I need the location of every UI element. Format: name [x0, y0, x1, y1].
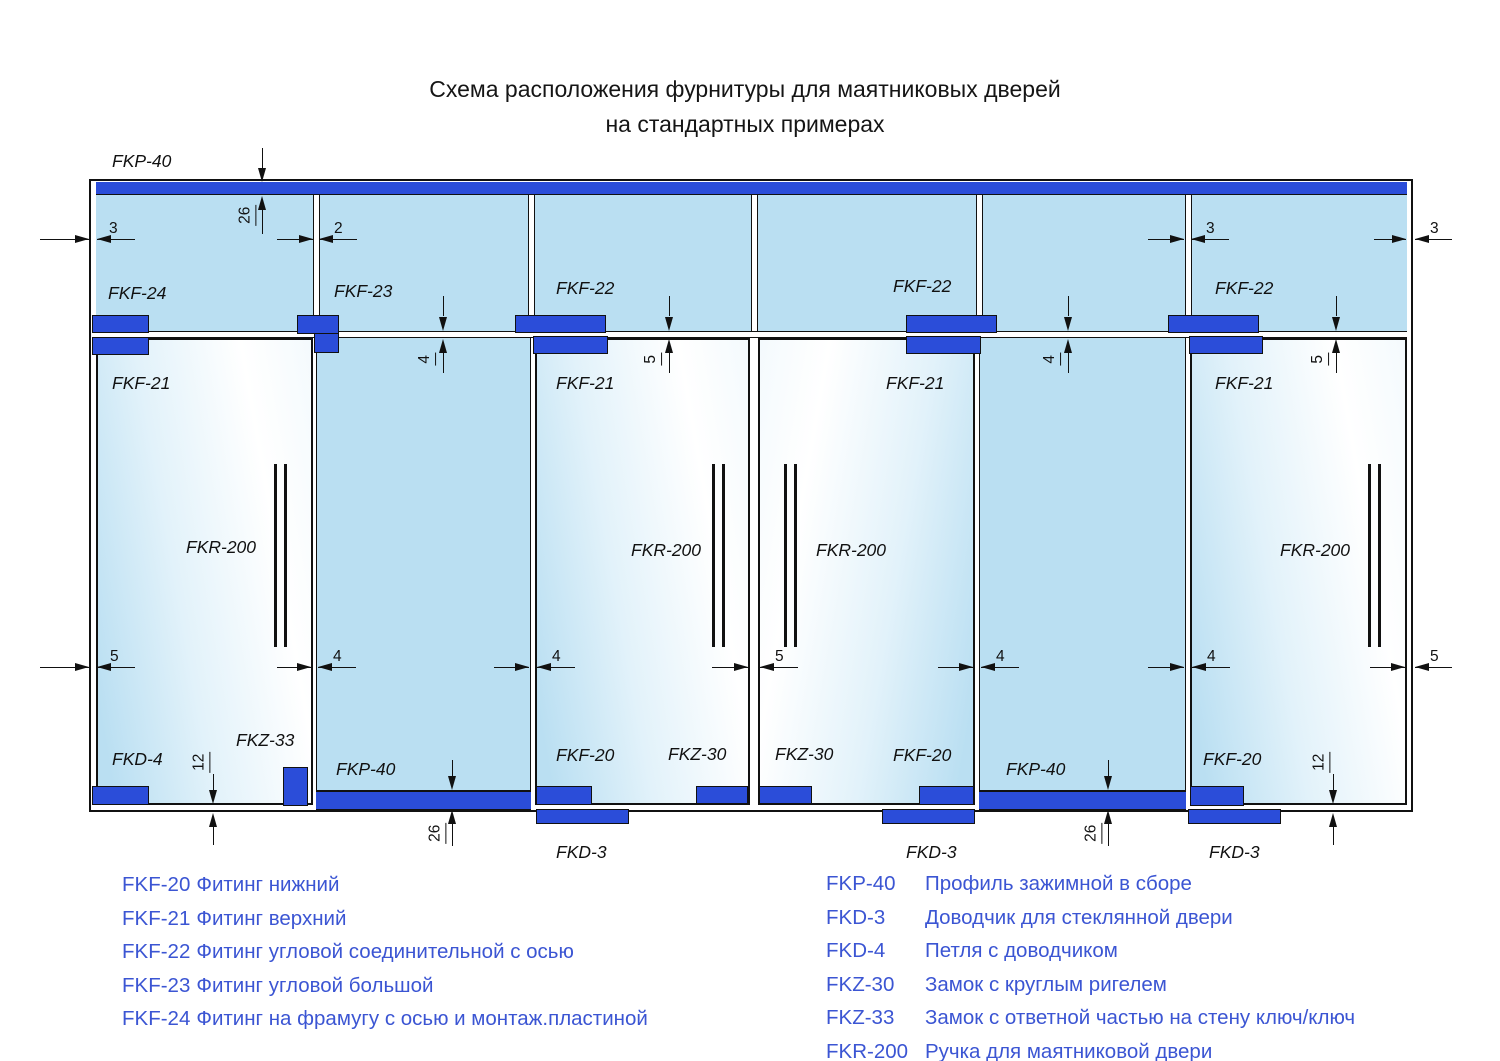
scheme-canvas: Схема расположения фурнитуры для маятник…: [0, 0, 1500, 1061]
legend-code: FKP-40: [826, 867, 925, 901]
dim-26-bottom-panel5: 26: [1083, 823, 1102, 844]
fkp40-bottom-profile-2: [316, 790, 531, 810]
label-fkz30-door3: FKZ-30: [668, 744, 726, 765]
dim-line: [443, 296, 444, 316]
arrowhead: [665, 339, 673, 353]
dim-4-door6-left: 4: [1207, 649, 1216, 665]
arrowhead: [1329, 790, 1337, 804]
legend-item-fkf22: FKF-22Фитинг угловой соединительной с ос…: [122, 935, 648, 969]
label-fkr200-door3: FKR-200: [631, 540, 701, 561]
legend-code: FKD-3: [826, 901, 925, 935]
title-line-1: Схема расположения фурнитуры для маятник…: [295, 72, 1195, 107]
fkf24-fitting: [92, 315, 149, 333]
transom-divider-2: [528, 195, 535, 331]
legend-item-fkp40: FKP-40Профиль зажимной в сборе: [826, 867, 1355, 901]
label-fkp40-door2: FKP-40: [336, 759, 395, 780]
legend-code: FKD-4: [826, 934, 925, 968]
legend-item-fkd3: FKD-3Доводчик для стеклянной двери: [826, 901, 1355, 935]
dim-line: [213, 827, 214, 845]
label-fkf21-door3: FKF-21: [556, 373, 614, 394]
fkd3-closer-door4: [882, 809, 975, 824]
dim-line: [1108, 824, 1109, 846]
arrowhead: [1392, 235, 1406, 243]
arrowhead: [665, 317, 673, 331]
dim-line: [1336, 296, 1337, 316]
legend-desc: Замок с ответной частью на стену ключ/кл…: [925, 1006, 1355, 1029]
legend-item-fkf20: FKF-20Фитинг нижний: [122, 868, 648, 902]
arrowhead: [515, 663, 529, 671]
dim-5-gap-panel6: 5: [1310, 353, 1329, 366]
arrowhead: [297, 663, 311, 671]
arrowhead: [1332, 339, 1340, 353]
label-fkd3-door3: FKD-3: [556, 842, 607, 863]
dim-26-top-profile: 26: [237, 205, 256, 226]
dim-line: [319, 239, 357, 240]
fkf22-fitting-upper-door6: [1168, 315, 1259, 333]
legend-code: FKF-20: [122, 868, 190, 902]
legend-item-fkf21: FKF-21Фитинг верхний: [122, 902, 648, 936]
fkf23-fitting-upper: [297, 315, 339, 334]
legend-code: FKF-21: [122, 902, 190, 936]
transom-divider-1: [313, 195, 320, 331]
dim-line: [97, 667, 135, 668]
dim-3-right-edge: 3: [1430, 221, 1439, 237]
label-fkz33: FKZ-33: [236, 730, 294, 751]
legend-code: FKZ-30: [826, 968, 925, 1002]
dim-4-door3-left: 4: [552, 649, 561, 665]
arrowhead: [448, 810, 456, 824]
arrowhead: [258, 168, 266, 182]
legend-code: FKF-24: [122, 1002, 190, 1036]
arrowhead: [439, 317, 447, 331]
arrowhead: [959, 663, 973, 671]
dim-line: [669, 353, 670, 373]
dim-line: [1108, 760, 1109, 776]
dim-line: [452, 824, 453, 846]
dim-4-panel5-left: 4: [996, 649, 1005, 665]
legend-left-column: FKF-20Фитинг нижний FKF-21Фитинг верхний…: [122, 868, 648, 1036]
arrowhead: [439, 339, 447, 353]
dim-line: [981, 667, 1019, 668]
dim-line: [669, 296, 670, 316]
fkf20-fitting-door6: [1190, 786, 1244, 806]
fkf21-fitting-door1: [92, 337, 149, 355]
fkp40-top-profile: [96, 182, 1407, 195]
legend-desc: Фитинг на фрамугу с осью и монтаж.пласти…: [196, 1007, 647, 1030]
legend-code: FKR-200: [826, 1035, 925, 1061]
dim-5-door4-left: 5: [775, 649, 784, 665]
arrowhead: [1332, 317, 1340, 331]
dim-line: [262, 148, 263, 170]
fkd3-closer-door6: [1188, 809, 1281, 824]
dim-12-door6: 12: [1311, 752, 1330, 773]
arrowhead: [1329, 813, 1337, 827]
title-line-2: на стандартных примерах: [295, 107, 1195, 142]
arrowhead: [299, 235, 313, 243]
arrowhead: [1391, 663, 1405, 671]
fkf22-fitting-upper-door4: [906, 315, 997, 333]
fkz30-lock-door4: [759, 786, 812, 804]
dim-line: [1191, 239, 1229, 240]
label-fkf20-door3: FKF-20: [556, 745, 614, 766]
dim-4-panel2-left: 4: [333, 649, 342, 665]
fkd4-hinge: [92, 786, 149, 805]
arrowhead: [75, 235, 89, 243]
arrowhead: [1170, 235, 1184, 243]
legend-item-fkz30: FKZ-30Замок с круглым ригелем: [826, 968, 1355, 1002]
legend-item-fkr200: FKR-200Ручка для маятниковой двери: [826, 1035, 1355, 1061]
dim-line: [1068, 296, 1069, 316]
arrowhead: [734, 663, 748, 671]
fkz30-lock-door3: [696, 786, 748, 804]
arrowhead: [209, 813, 217, 827]
label-fkf21-door4: FKF-21: [886, 373, 944, 394]
dim-line: [97, 239, 135, 240]
fkr200-handle-door1: [274, 464, 287, 647]
dim-3-panel1-top: 3: [109, 221, 118, 237]
arrowhead: [448, 776, 456, 790]
fkf20-fitting-door3: [536, 786, 592, 805]
label-fkp40-door5: FKP-40: [1006, 759, 1065, 780]
dim-4-gap-panel2: 4: [417, 353, 436, 366]
arrowhead: [209, 790, 217, 804]
label-fkf21-door1: FKF-21: [112, 373, 170, 394]
page-title: Схема расположения фурнитуры для маятник…: [295, 72, 1195, 142]
dim-line: [1336, 353, 1337, 373]
label-fkp40-top: FKP-40: [112, 151, 171, 172]
legend-desc: Ручка для маятниковой двери: [925, 1040, 1212, 1061]
fkr200-handle-door4: [784, 464, 797, 647]
dim-line: [318, 667, 356, 668]
legend-item-fkz33: FKZ-33Замок с ответной частью на стену к…: [826, 1001, 1355, 1035]
legend-item-fkd4: FKD-4Петля с доводчиком: [826, 934, 1355, 968]
legend-code: FKF-22: [122, 935, 190, 969]
legend-item-fkf24: FKF-24Фитинг на фрамугу с осью и монтаж.…: [122, 1002, 648, 1036]
legend-desc: Петля с доводчиком: [925, 939, 1118, 962]
dim-5-right-edge: 5: [1430, 649, 1439, 665]
label-fkz30-door4: FKZ-30: [775, 744, 833, 765]
dim-line: [760, 667, 798, 668]
dim-5-door1-left: 5: [110, 649, 119, 665]
legend-desc: Доводчик для стеклянной двери: [925, 906, 1233, 929]
label-fkd3-door6: FKD-3: [1209, 842, 1260, 863]
dim-4-gap-panel5: 4: [1042, 353, 1061, 366]
arrowhead: [258, 196, 266, 210]
arrowhead: [75, 663, 89, 671]
dim-line: [1192, 667, 1230, 668]
label-fkf22-door4: FKF-22: [893, 276, 951, 297]
label-fkd3-door4: FKD-3: [906, 842, 957, 863]
legend-code: FKF-23: [122, 969, 190, 1003]
label-fkd4: FKD-4: [112, 749, 163, 770]
transom-divider-5: [1185, 195, 1192, 331]
dim-line: [213, 774, 214, 790]
arrowhead: [1104, 810, 1112, 824]
fkr200-handle-door3: [712, 464, 725, 647]
fkf22-fitting-upper-door3: [515, 315, 606, 333]
dim-26-bottom-panel2: 26: [427, 823, 446, 844]
fkf20-fitting-door4: [919, 786, 974, 805]
legend-item-fkf23: FKF-23Фитинг угловой большой: [122, 969, 648, 1003]
dim-line: [262, 210, 263, 234]
legend-right-column: FKP-40Профиль зажимной в сборе FKD-3Дово…: [826, 867, 1355, 1061]
fkd3-closer-door3: [536, 809, 629, 824]
legend-desc: Фитинг нижний: [196, 873, 339, 896]
label-fkf21-door6: FKF-21: [1215, 373, 1273, 394]
legend-code: FKZ-33: [826, 1001, 925, 1035]
label-fkr200-door4: FKR-200: [816, 540, 886, 561]
fixed-panel-5: [979, 338, 1186, 790]
legend-desc: Фитинг верхний: [196, 907, 346, 930]
label-fkr200-door1: FKR-200: [186, 537, 256, 558]
label-fkf20-door4: FKF-20: [893, 745, 951, 766]
arrowhead: [1064, 317, 1072, 331]
fkr200-handle-door6: [1368, 464, 1381, 647]
fkf22-fitting-lower-door4: [906, 336, 981, 354]
label-fkf22-door3: FKF-22: [556, 278, 614, 299]
label-fkr200-door6: FKR-200: [1280, 540, 1350, 561]
arrowhead: [1064, 339, 1072, 353]
dim-line: [1415, 667, 1452, 668]
dim-line: [443, 353, 444, 373]
dim-12-door1: 12: [191, 752, 210, 773]
fixed-panel-2: [316, 338, 531, 790]
dim-line: [1415, 239, 1452, 240]
arrowhead: [1104, 776, 1112, 790]
dim-line: [1333, 827, 1334, 845]
dim-line: [452, 760, 453, 776]
dim-line: [537, 667, 575, 668]
legend-desc: Замок с круглым ригелем: [925, 973, 1167, 996]
dim-line: [1333, 774, 1334, 790]
label-fkf23: FKF-23: [334, 281, 392, 302]
label-fkf24: FKF-24: [108, 283, 166, 304]
transom-divider-4: [976, 195, 983, 331]
fkf22-fitting-lower-door3: [533, 336, 608, 354]
dim-line: [1068, 353, 1069, 373]
dim-5-gap-panel3: 5: [643, 353, 662, 366]
fkz33-lock: [283, 767, 308, 806]
legend-desc: Профиль зажимной в сборе: [925, 872, 1192, 895]
dim-2-panel2-top: 2: [334, 221, 343, 237]
legend-desc: Фитинг угловой большой: [196, 974, 433, 997]
label-fkf22-door6: FKF-22: [1215, 278, 1273, 299]
transom-divider-3: [751, 195, 758, 331]
dim-3-panel6-top: 3: [1206, 221, 1215, 237]
fkp40-bottom-profile-5: [979, 790, 1186, 810]
label-fkf20-door6: FKF-20: [1203, 749, 1261, 770]
legend-desc: Фитинг угловой соединительной с осью: [196, 940, 574, 963]
arrowhead: [1170, 663, 1184, 671]
fkf22-fitting-lower-door6: [1189, 336, 1263, 354]
